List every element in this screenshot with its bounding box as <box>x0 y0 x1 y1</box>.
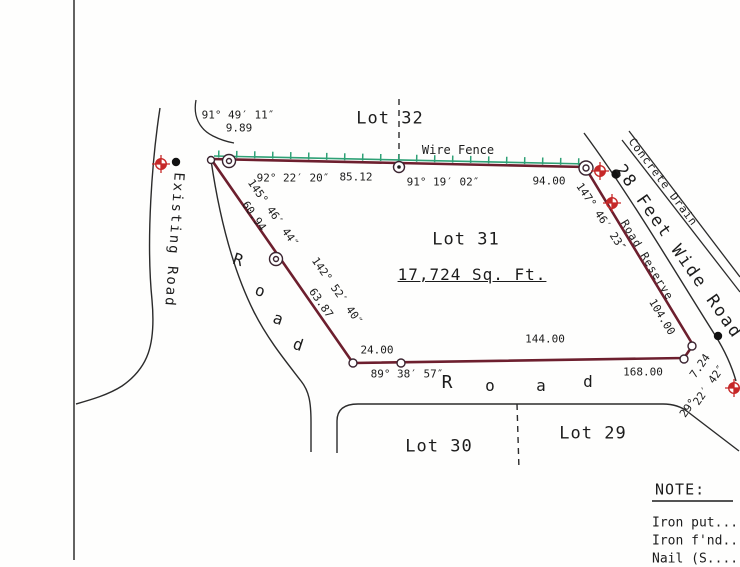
survey-drawing <box>0 0 740 560</box>
note-item-iron-found: Iron f'nd.. <box>652 535 738 548</box>
survey-plan-page: { "lots": { "lot31": "Lot 31", "lot31_ar… <box>0 0 740 560</box>
top-distance-2: 94.00 <box>532 176 565 187</box>
nw-corner-distance: 9.89 <box>226 123 253 134</box>
benchmark-southeast-icon <box>725 379 740 397</box>
sw-distance: 24.00 <box>360 345 393 356</box>
south-distance: 144.00 <box>525 334 565 345</box>
top-bearing-1: 92° 22′ 20″ <box>257 173 330 184</box>
fence-marker-dot <box>397 165 401 169</box>
note-item-nail: Nail (S.... <box>652 553 738 566</box>
lot30-label: Lot 30 <box>405 439 472 456</box>
note-item-iron-put: Iron put.... <box>652 517 740 530</box>
bottom-road-letter-d: d <box>583 374 593 390</box>
lot31-area-label: 17,724 Sq. Ft. <box>398 267 547 283</box>
sw-bearing: 89° 38′ 57″ <box>371 369 444 380</box>
top-bearing-2: 91° 19′ 02″ <box>407 177 480 188</box>
lot32-label: Lot 32 <box>356 111 423 128</box>
wire-fence-label: Wire Fence <box>422 144 494 156</box>
top-distance-1: 85.12 <box>339 172 372 183</box>
note-title: NOTE: <box>655 483 705 498</box>
bottom-road-letter-r: R <box>442 374 453 392</box>
existing-road-left-edge <box>76 108 160 404</box>
benchmark-east-icon <box>603 194 621 212</box>
bottom-road-letter-o: o <box>485 378 495 394</box>
lot31-label: Lot 31 <box>432 232 499 249</box>
benchmark-west-icon <box>152 155 170 173</box>
bottom-road-letter-a: a <box>536 378 546 394</box>
nw-corner-angle: 91° 49′ 11″ <box>202 110 275 121</box>
lot29-label: Lot 29 <box>559 426 626 443</box>
south-total-distance: 168.00 <box>623 367 663 378</box>
lot29-lot30-division-dashed-line <box>517 404 519 470</box>
lot31-boundary <box>211 159 693 363</box>
